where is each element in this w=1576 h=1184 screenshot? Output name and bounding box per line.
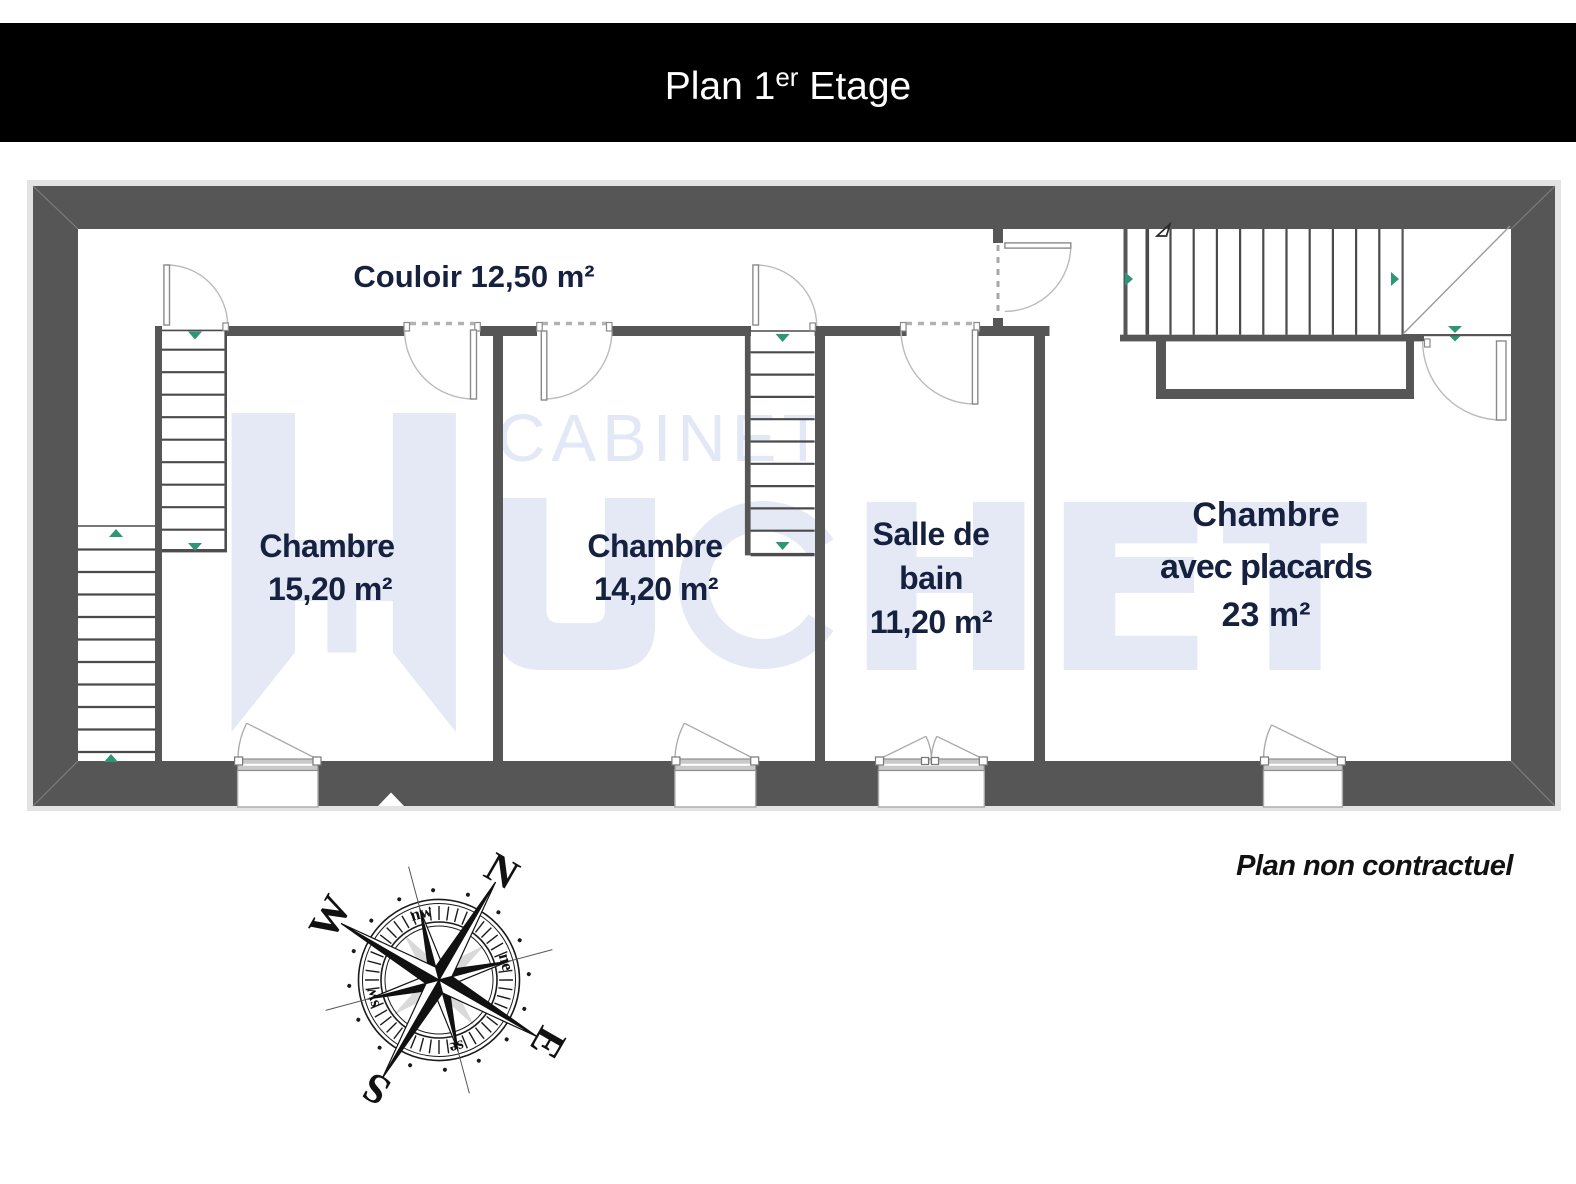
svg-text:sw: sw [360, 986, 383, 1010]
svg-text:15,20 m²: 15,20 m² [268, 571, 392, 607]
svg-text:Couloir 12,50 m²: Couloir 12,50 m² [353, 259, 594, 294]
svg-text:Salle de: Salle de [873, 516, 990, 552]
svg-text:Chambre: Chambre [1192, 496, 1339, 534]
svg-text:Chambre: Chambre [587, 528, 722, 564]
svg-text:Plan non contractuel: Plan non contractuel [1236, 850, 1514, 882]
svg-text:N: N [477, 844, 526, 899]
svg-text:E: E [520, 1019, 574, 1066]
svg-text:bain: bain [899, 560, 963, 596]
svg-text:W: W [300, 888, 361, 947]
svg-text:11,20 m²: 11,20 m² [870, 604, 992, 640]
svg-text:Chambre: Chambre [259, 528, 394, 564]
svg-text:ne: ne [495, 951, 518, 973]
svg-text:S: S [355, 1062, 398, 1114]
svg-text:23 m²: 23 m² [1222, 596, 1311, 634]
svg-text:avec placards: avec placards [1160, 548, 1372, 586]
svg-text:14,20 m²: 14,20 m² [594, 571, 718, 607]
